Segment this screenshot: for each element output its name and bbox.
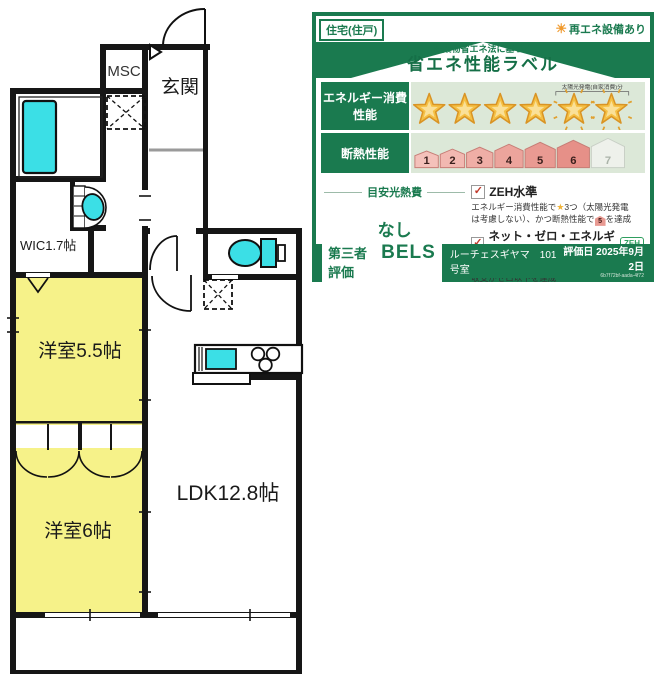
insulation-row: 断熱性能 1 2 (321, 133, 645, 173)
house-number: 4 (506, 155, 513, 167)
zeh-desc-text: を達成 (606, 214, 632, 224)
bels-box: 第三者評価 BELS (322, 241, 442, 282)
renewable-badge-label: 再エネ設備あり (569, 24, 646, 36)
card-roof: 建築物省エネ法に基づく 省エネ性能ラベル (316, 42, 650, 78)
house-number: 1 (423, 155, 429, 167)
ldk-door-arc (152, 275, 191, 311)
checkbox-checked-icon: ✓ (471, 185, 485, 199)
toilet (229, 239, 285, 267)
energy-label-card: 住宅(住戸) ☀再エネ設備あり 建築物省エネ法に基づく 省エネ性能ラベル エネル… (312, 12, 654, 282)
star-icon (414, 94, 445, 124)
building-name: ルーチェスギヤマ 101号室 (450, 246, 560, 276)
zeh-standard-desc: エネルギー消費性能で★3つ（太陽光発電 は考慮しない）、かつ断熱性能で5を達成 (471, 201, 644, 226)
house-number: 6 (570, 155, 576, 167)
mini-house-icon: 5 (595, 216, 606, 226)
hall-door-arc (150, 236, 177, 271)
zeh-desc-text: 3つ（太陽光発電 (564, 202, 628, 212)
washer-space (107, 96, 145, 129)
washbasin (73, 186, 106, 228)
screenshot-root: MSC 玄関 WIC1.7帖 洋室5.5帖 洋室6帖 LDK12.8帖 住宅(住… (0, 0, 662, 690)
insulation-row-label: 断熱性能 (321, 133, 409, 173)
bathtub (23, 101, 56, 173)
zeh-standard-label: ZEH水準 (489, 183, 537, 200)
sun-icon: ☀ (555, 21, 567, 36)
star-icon (485, 94, 516, 124)
bels-logo: BELS (381, 242, 436, 264)
dwelling-type-badge: 住宅(住戸) (319, 19, 384, 41)
utility-cost-value: なし (324, 216, 465, 241)
solar-star-icon (554, 90, 595, 130)
energy-row-stars: 太陽光発電(自家消費)分 (411, 82, 645, 130)
zeh-desc-text: エネルギー消費性能で (471, 202, 556, 212)
solar-star-icon (591, 90, 632, 130)
bedroom-55-label: 洋室5.5帖 (38, 340, 121, 362)
kitchen-sink (206, 349, 236, 369)
fridge-space (204, 280, 232, 309)
card-footer: 第三者評価 BELS ルーチェスギヤマ 101号室 評価日 2025年9月2日 … (316, 244, 650, 278)
card-subtitle: 建築物省エネ法に基づく (316, 44, 650, 55)
card-title: 省エネ性能ラベル (316, 55, 650, 75)
evaluation-date: 評価日 2025年9月2日 (560, 243, 644, 273)
renewable-badge: ☀再エネ設備あり (555, 21, 646, 37)
house-number: 7 (605, 155, 611, 167)
house-number: 5 (537, 155, 543, 167)
rating-rows: エネルギー消費性能 (316, 78, 650, 178)
divider-line (324, 192, 362, 193)
card-header: 住宅(住戸) ☀再エネ設備あり (316, 16, 650, 42)
utility-cost-header: 目安光熱費 (362, 184, 427, 200)
entrance-door-arc (163, 9, 205, 45)
evaluation-id: 6b7f72bf-aada-4f72 (560, 273, 644, 279)
insulation-row-houses: 1 2 3 4 5 6 7 (411, 133, 645, 173)
star-icon (520, 94, 551, 124)
star-icon (449, 94, 480, 124)
wic-label: WIC1.7帖 (20, 238, 76, 253)
houses-graphic: 1 2 3 4 5 6 7 (411, 133, 645, 173)
house-number: 3 (477, 155, 483, 167)
stars-graphic: 太陽光発電(自家消費)分 (411, 82, 645, 130)
energy-row: エネルギー消費性能 (321, 82, 645, 130)
cert-type-label: 第三者評価 (328, 243, 377, 281)
ldk-label: LDK12.8帖 (177, 482, 280, 505)
genkan-label: 玄関 (161, 76, 199, 98)
energy-row-label: エネルギー消費性能 (321, 82, 409, 130)
msc-label: MSC (107, 63, 141, 80)
house-number: 2 (449, 155, 455, 167)
zeh-desc-text: は考慮しない）、かつ断熱性能で (471, 214, 594, 224)
solar-caption: 太陽光発電(自家消費)分 (562, 83, 624, 91)
divider-line (427, 192, 465, 193)
bedroom-6-label: 洋室6帖 (44, 520, 112, 542)
